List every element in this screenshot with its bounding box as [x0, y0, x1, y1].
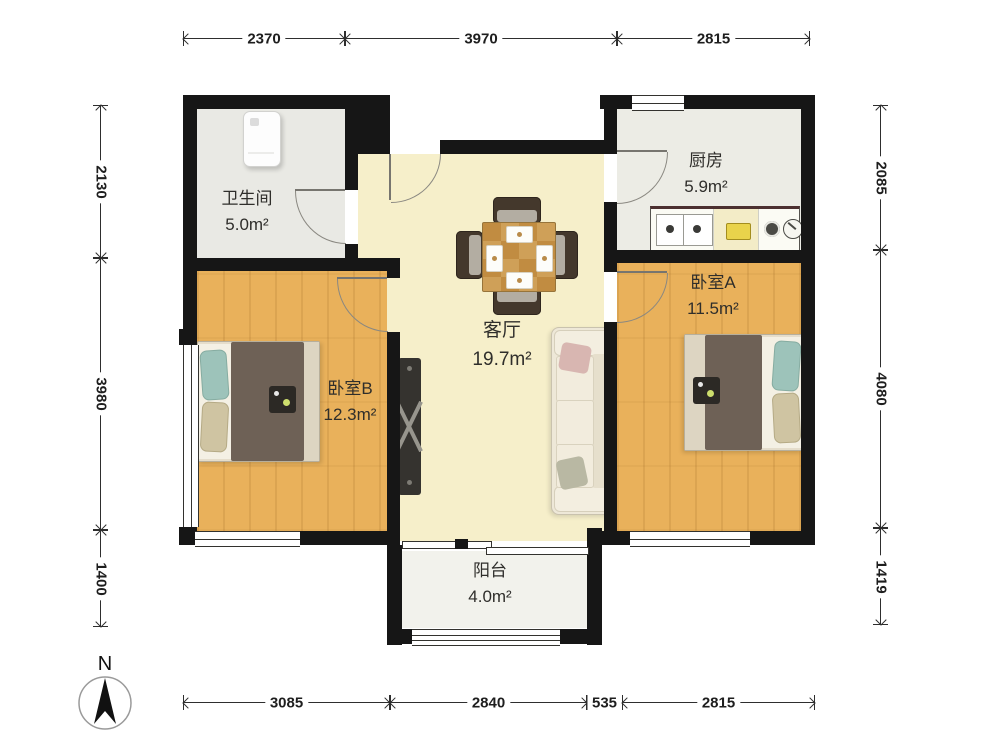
- kitchen-area: 5.9m²: [684, 174, 727, 200]
- dim-bottom-2-value: 2840: [467, 695, 510, 712]
- bedroom-b-south-window: [195, 531, 300, 547]
- placemat-bottom: [506, 272, 533, 289]
- dim-left-3-value: 1400: [93, 557, 110, 600]
- balcony-sliding-panel-2: [486, 547, 589, 555]
- sofa-armrest-bottom: [554, 486, 611, 512]
- bathroom-name: 卫生间: [222, 186, 273, 212]
- dim-left-2: 3980: [92, 258, 110, 530]
- fixture-line: [248, 152, 274, 154]
- living-room-name: 客厅: [472, 316, 531, 345]
- floor-plan: 卫生间 5.0m² 厨房 5.9m² 客厅 19.7m² 卧室A 11.5m² …: [0, 0, 990, 743]
- tv-dot-top: [407, 366, 412, 371]
- balcony-sliding-handle: [455, 539, 468, 549]
- bathroom-label: 卫生间 5.0m²: [222, 186, 273, 239]
- kitchen-label: 厨房 5.9m²: [684, 148, 727, 201]
- sink-drain-left: [666, 225, 674, 233]
- bedroom-b-west-window: [183, 345, 199, 527]
- bed-b-tray: [269, 386, 296, 413]
- stove-burner-right: [783, 219, 803, 239]
- dim-left-3: 1400: [92, 530, 110, 627]
- bedroom-b-label: 卧室B 12.3m²: [324, 376, 377, 429]
- sink-drain-right: [693, 225, 701, 233]
- balcony-window: [412, 629, 560, 646]
- placemat-top: [506, 226, 533, 243]
- sofa-pillow-olive: [555, 455, 589, 490]
- bed-a-pillow-tan: [772, 392, 802, 443]
- dim-top-2: 3970: [345, 30, 617, 48]
- tray-dot-green: [283, 399, 290, 406]
- tray-dot-white: [698, 382, 703, 387]
- kitchen-window: [632, 95, 684, 111]
- tray-dot-white: [274, 391, 279, 396]
- bed-b-foot-runner: [304, 342, 319, 461]
- placemat-left: [486, 245, 503, 272]
- dim-top-1: 2370: [183, 30, 345, 48]
- dim-left-1: 2130: [92, 105, 110, 258]
- living-room-area: 19.7m²: [472, 345, 531, 374]
- balcony-name: 阳台: [468, 558, 511, 584]
- counter-divider-2: [758, 209, 759, 253]
- dim-right-2-value: 4080: [873, 367, 890, 410]
- sofa-pillow-pink: [558, 342, 592, 375]
- bedroom-b-area: 12.3m²: [324, 402, 377, 428]
- wall-bathroom-east-upper: [345, 95, 358, 190]
- sink-divider: [683, 214, 684, 245]
- balcony-label: 阳台 4.0m²: [468, 558, 511, 611]
- wall-bathroom-north: [183, 95, 365, 109]
- fixture-detail: [250, 118, 259, 126]
- compass-n-label: N: [98, 653, 112, 675]
- wall-balcony-south-right: [560, 629, 602, 644]
- wall-mid-lower: [604, 322, 617, 545]
- bed-b-pillow-teal: [199, 349, 229, 401]
- dim-right-1: 2085: [872, 105, 890, 250]
- dim-bottom-1-value: 3085: [265, 695, 308, 712]
- bedroom-a-name: 卧室A: [687, 270, 739, 296]
- dim-right-3: 1419: [872, 528, 890, 625]
- bed-bedroom-b: [197, 341, 320, 462]
- kitchen-name: 厨房: [684, 148, 727, 174]
- bedroom-a-area: 11.5m²: [687, 296, 739, 322]
- dim-bottom-3: 535: [587, 694, 622, 712]
- balcony-area: 4.0m²: [468, 584, 511, 610]
- living-room-label: 客厅 19.7m²: [472, 316, 531, 375]
- placemat-right: [536, 245, 553, 272]
- balcony-sliding-panel-1: [402, 541, 492, 549]
- sofa-cushion-2: [556, 400, 594, 446]
- wall-cap-window-top: [179, 329, 197, 345]
- wall-mid-upper: [604, 95, 617, 151]
- small-appliance: [726, 223, 751, 240]
- wall-east-exterior: [801, 95, 815, 545]
- wall-living-north: [440, 140, 617, 154]
- dim-right-1-value: 2085: [873, 156, 890, 199]
- wall-bathroom-south: [183, 258, 400, 271]
- dim-bottom-1: 3085: [183, 694, 390, 712]
- bedroom-b-name: 卧室B: [324, 376, 377, 402]
- compass-needle-icon: [94, 678, 116, 724]
- tv-dot-bottom: [407, 480, 412, 485]
- dim-left-2-value: 3980: [93, 372, 110, 415]
- dim-right-3-value: 1419: [873, 555, 890, 598]
- tray-dot-green: [707, 390, 714, 397]
- bedroom-a-south-window: [630, 531, 750, 547]
- wall-kitchen-south: [604, 250, 815, 263]
- bed-a-pillow-teal: [771, 340, 801, 392]
- north-compass: N: [72, 648, 138, 736]
- dining-chair-left: [456, 231, 483, 279]
- dim-bottom-3-value: 535: [587, 695, 622, 712]
- kitchen-counter: [650, 206, 800, 254]
- wall-kitchen-north-right: [684, 95, 815, 109]
- dim-top-1-value: 2370: [242, 31, 285, 48]
- dim-bottom-4: 2815: [622, 694, 815, 712]
- dim-top-2-value: 3970: [459, 31, 502, 48]
- bedroom-a-label: 卧室A 11.5m²: [687, 270, 739, 323]
- wall-bedroom-b-east-upper: [387, 258, 400, 278]
- dining-chair-top: [493, 197, 541, 224]
- bed-a-tray: [693, 377, 720, 404]
- dining-table: [482, 222, 556, 292]
- bathroom-fixture: [243, 111, 281, 167]
- wall-bedroom-b-east-lower: [387, 332, 400, 545]
- dim-bottom-2: 2840: [390, 694, 587, 712]
- dim-top-3: 2815: [617, 30, 810, 48]
- dim-left-1-value: 2130: [93, 160, 110, 203]
- dim-right-2: 4080: [872, 250, 890, 528]
- dim-top-3-value: 2815: [692, 31, 735, 48]
- stove-burner-left: [764, 221, 780, 237]
- wall-bedroom-a-south-right: [750, 531, 815, 545]
- tv-stand: [398, 358, 421, 495]
- dining-chair-bottom: [493, 288, 541, 315]
- kitchen-sink: [656, 214, 713, 246]
- bed-bedroom-a: [684, 334, 803, 451]
- bathroom-area: 5.0m²: [222, 212, 273, 238]
- wall-bedroom-a-south-left: [602, 531, 630, 545]
- wall-bedroom-b-south-right: [300, 531, 400, 545]
- wall-balcony-east: [587, 528, 602, 645]
- bed-b-pillow-tan: [200, 401, 230, 452]
- wall-balcony-south-left: [387, 629, 412, 644]
- dim-bottom-4-value: 2815: [697, 695, 740, 712]
